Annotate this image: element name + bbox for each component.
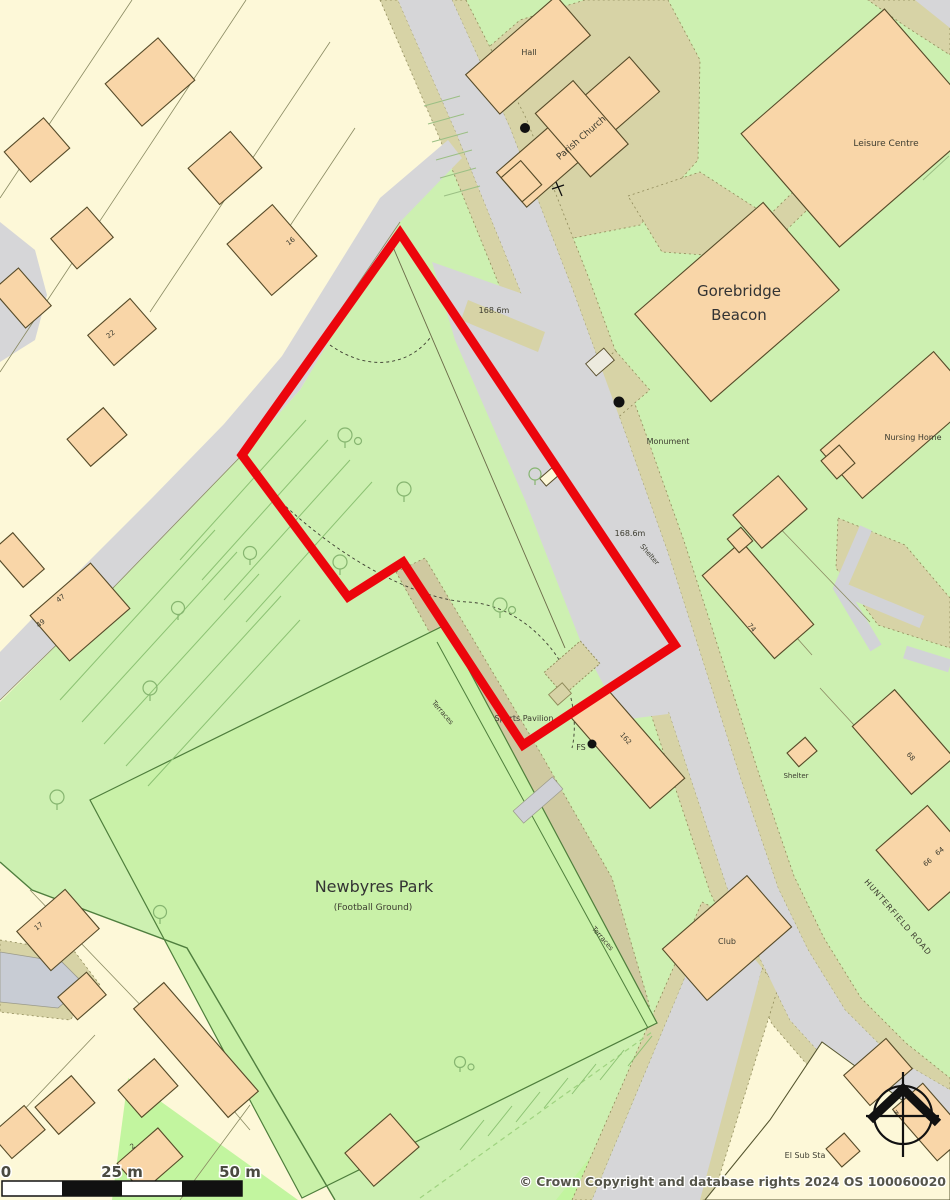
label-leisure-centre: Leisure Centre <box>853 139 919 149</box>
label-hall: Hall <box>521 48 536 57</box>
label-spot-height-south: 168.6m <box>615 529 646 538</box>
label-spot-height-north: 168.6m <box>479 306 510 315</box>
label-shelter-east: Shelter <box>783 772 808 780</box>
attribution: © Crown Copyright and database rights 20… <box>519 1174 946 1189</box>
copyright-text: © Crown Copyright and database rights 20… <box>519 1174 946 1189</box>
label-gorebridge-1: Gorebridge <box>697 282 781 300</box>
label-football-ground: (Football Ground) <box>334 903 413 913</box>
scale-label-50m: 50 m <box>219 1163 261 1181</box>
label-newbyres-park: Newbyres Park <box>315 877 434 896</box>
monument-dot <box>614 397 625 408</box>
label-el-sub-sta: El Sub Sta <box>785 1151 826 1160</box>
site-plan-map: Hall Parish Church Leisure Centre Gorebr… <box>0 0 950 1200</box>
label-fs: FS <box>576 743 586 752</box>
flagstaff-dot <box>588 740 597 749</box>
church-tower-dot <box>520 123 530 133</box>
label-monument: Monument <box>647 437 690 446</box>
scale-label-0: 0 <box>1 1163 11 1181</box>
scale-label-25m: 25 m <box>101 1163 143 1181</box>
label-nursing-home: Nursing Home <box>884 433 941 442</box>
label-club: Club <box>718 937 736 946</box>
label-gorebridge-2: Beacon <box>711 306 767 324</box>
map-canvas: Hall Parish Church Leisure Centre Gorebr… <box>0 0 950 1200</box>
